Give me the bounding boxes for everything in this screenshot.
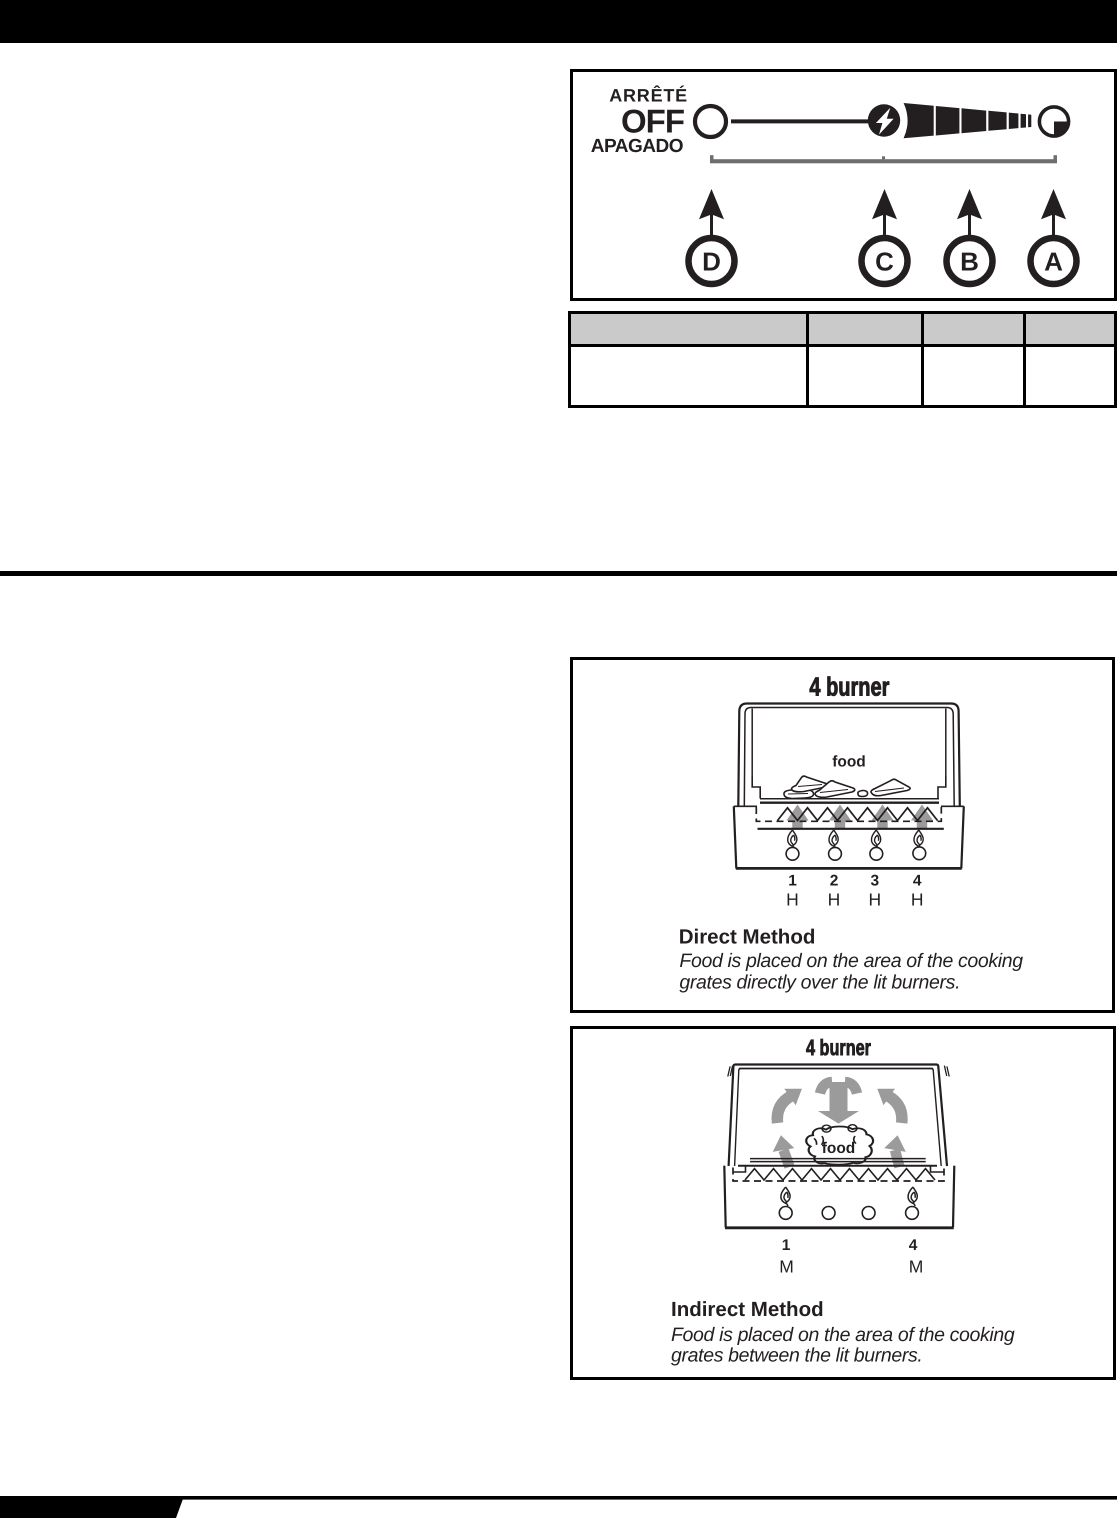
svg-text:2: 2 xyxy=(830,873,839,890)
svg-text:4 burner: 4 burner xyxy=(806,1035,871,1060)
svg-text:OFF: OFF xyxy=(621,102,684,139)
svg-text:3: 3 xyxy=(870,873,879,890)
svg-text:4: 4 xyxy=(913,873,922,890)
svg-text:H: H xyxy=(911,890,924,910)
svg-text:1: 1 xyxy=(788,873,797,890)
svg-text:H: H xyxy=(786,890,799,910)
svg-text:D: D xyxy=(702,246,721,276)
svg-text:food: food xyxy=(822,1140,856,1157)
svg-text:M: M xyxy=(909,1257,924,1277)
svg-text:food: food xyxy=(832,754,866,771)
svg-text:C: C xyxy=(875,246,894,276)
svg-text:4: 4 xyxy=(909,1237,918,1254)
svg-text:Food is placed on the area of: Food is placed on the area of the cookin… xyxy=(679,950,1023,972)
svg-text:grates directly over the lit b: grates directly over the lit burners. xyxy=(679,971,960,993)
svg-text:4 burner: 4 burner xyxy=(809,672,889,702)
svg-text:APAGADO: APAGADO xyxy=(591,136,683,157)
svg-text:B: B xyxy=(960,246,979,276)
svg-text:A: A xyxy=(1044,246,1063,276)
svg-text:Indirect Method: Indirect Method xyxy=(671,1298,824,1321)
svg-text:Direct Method: Direct Method xyxy=(679,925,816,948)
svg-text:H: H xyxy=(828,890,841,910)
svg-text:1: 1 xyxy=(782,1237,791,1254)
svg-text:grates between the lit burners: grates between the lit burners. xyxy=(671,1345,922,1367)
svg-text:H: H xyxy=(868,890,881,910)
svg-text:Food is placed on the area of: Food is placed on the area of the cookin… xyxy=(671,1324,1015,1346)
svg-text:M: M xyxy=(779,1257,794,1277)
